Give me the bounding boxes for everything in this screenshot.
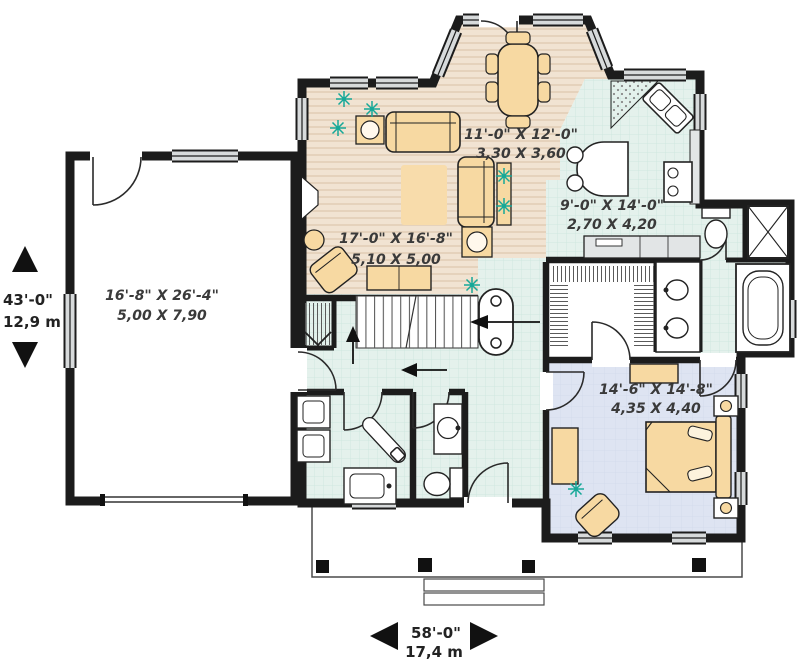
living-room-label-metric: 5,10 X 5,00 xyxy=(351,252,441,268)
depth-imperial: 43'-0" xyxy=(3,291,53,309)
garage-walls xyxy=(70,156,295,501)
dimension-depth: 43'-0" 12,9 m xyxy=(3,246,61,368)
floor-plan: 16'-8" X 26'-4" 5,00 X 7,90 17'-0" X 16'… xyxy=(0,0,800,663)
kitchen-label-metric: 2,70 X 4,20 xyxy=(567,217,657,233)
console-table-south xyxy=(367,266,431,290)
garage-entry-door xyxy=(93,157,141,205)
kitchen-label-imperial: 9'-0" X 14'-0" xyxy=(560,198,664,214)
arrow-left-icon xyxy=(370,622,398,650)
dryer-icon xyxy=(297,430,330,462)
dresser xyxy=(630,364,678,383)
dining-room-label-imperial: 11'-0" X 12'-0" xyxy=(464,127,578,143)
stove-icon xyxy=(664,162,692,202)
bedroom-label-imperial: 14'-6" X 14'-8" xyxy=(599,382,713,398)
arrow-down-icon xyxy=(12,342,38,368)
bathtub-icon xyxy=(736,264,790,352)
sofa-icon xyxy=(386,112,460,152)
porch-column xyxy=(316,560,329,573)
floor-plan-page: 16'-8" X 26'-4" 5,00 X 7,90 17'-0" X 16'… xyxy=(0,0,800,663)
rug xyxy=(401,165,447,225)
porch-column xyxy=(418,558,432,572)
toilet-icon xyxy=(702,208,730,248)
kitchen-chair xyxy=(567,147,583,163)
kitchen-chair xyxy=(567,175,583,191)
closet-rod xyxy=(550,266,654,282)
dresser xyxy=(552,428,578,484)
sink-icon xyxy=(666,280,688,300)
kitchen-counter-bottom xyxy=(584,236,700,258)
laundry-sink xyxy=(344,468,396,504)
arrow-right-icon xyxy=(470,622,498,650)
bedroom-label-metric: 4,35 X 4,40 xyxy=(610,401,701,417)
porch-column xyxy=(692,558,706,572)
depth-metric: 12,9 m xyxy=(3,313,61,331)
round-table xyxy=(304,230,324,250)
powder-vanity xyxy=(434,404,462,454)
end-table xyxy=(356,116,384,144)
sink-icon xyxy=(666,318,688,338)
dining-table-icon xyxy=(498,44,538,116)
closet-rod xyxy=(550,284,568,348)
dining-room-label-metric: 3,30 X 3,60 xyxy=(476,146,566,162)
width-metric: 17,4 m xyxy=(405,643,463,661)
closet-rod xyxy=(634,284,654,348)
washer-icon xyxy=(297,396,330,428)
porch-step xyxy=(424,579,544,591)
porch-step xyxy=(424,593,544,605)
nightstand xyxy=(714,498,738,518)
bed-icon xyxy=(646,416,731,498)
end-table xyxy=(462,227,492,257)
garage-label-metric: 5,00 X 7,90 xyxy=(117,308,207,324)
double-vanity xyxy=(656,262,700,352)
garage-label-imperial: 16'-8" X 26'-4" xyxy=(105,288,219,304)
width-imperial: 58'-0" xyxy=(411,624,461,642)
nightstand xyxy=(714,396,738,416)
arrow-up-icon xyxy=(12,246,38,272)
porch-column xyxy=(522,560,535,573)
dimension-width: 58'-0" 17,4 m xyxy=(370,622,498,661)
sink-icon xyxy=(438,418,459,439)
loveseat-icon xyxy=(458,157,494,227)
shower-icon xyxy=(748,206,788,258)
living-room-label-imperial: 17'-0" X 16'-8" xyxy=(339,231,453,247)
coat-closet xyxy=(305,303,331,345)
